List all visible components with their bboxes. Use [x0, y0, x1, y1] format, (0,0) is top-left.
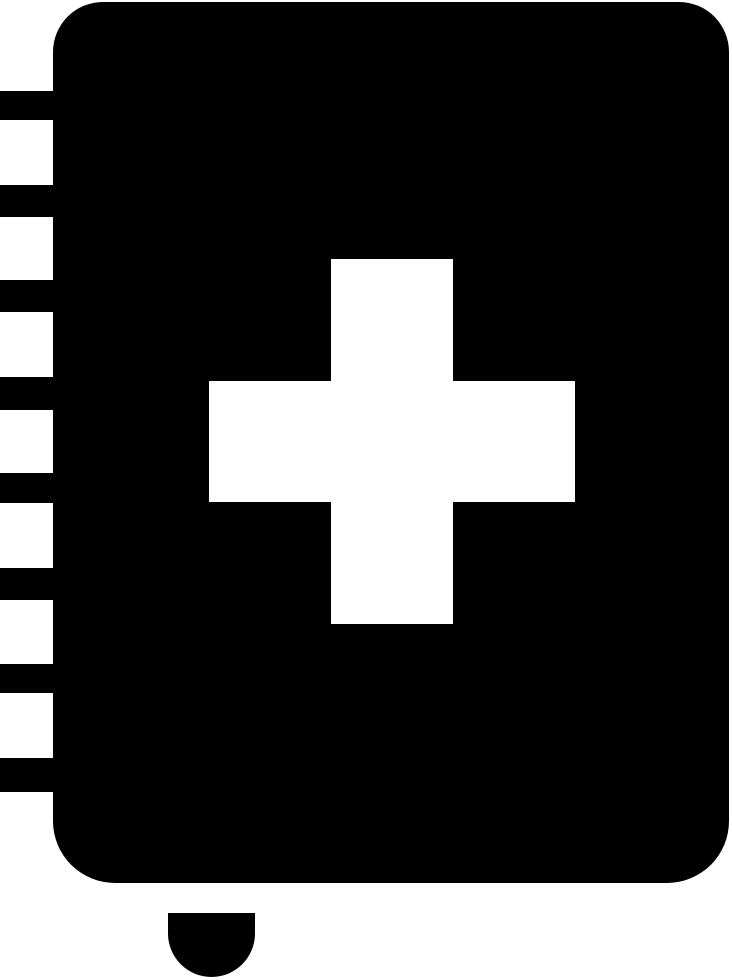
binding-tab-icon [0, 377, 60, 410]
binding-tab-icon [0, 758, 60, 792]
first-aid-book-icon [0, 0, 732, 980]
binding-tab-icon [0, 185, 60, 217]
binding-tab-icon [0, 91, 60, 120]
binding-tab-icon [0, 473, 60, 503]
binding-tab-icon [0, 280, 60, 312]
binding-tab-icon [0, 568, 60, 600]
cross-horizontal-bar [209, 381, 575, 502]
bottom-charm-icon [168, 913, 255, 977]
binding-tab-icon [0, 664, 60, 693]
